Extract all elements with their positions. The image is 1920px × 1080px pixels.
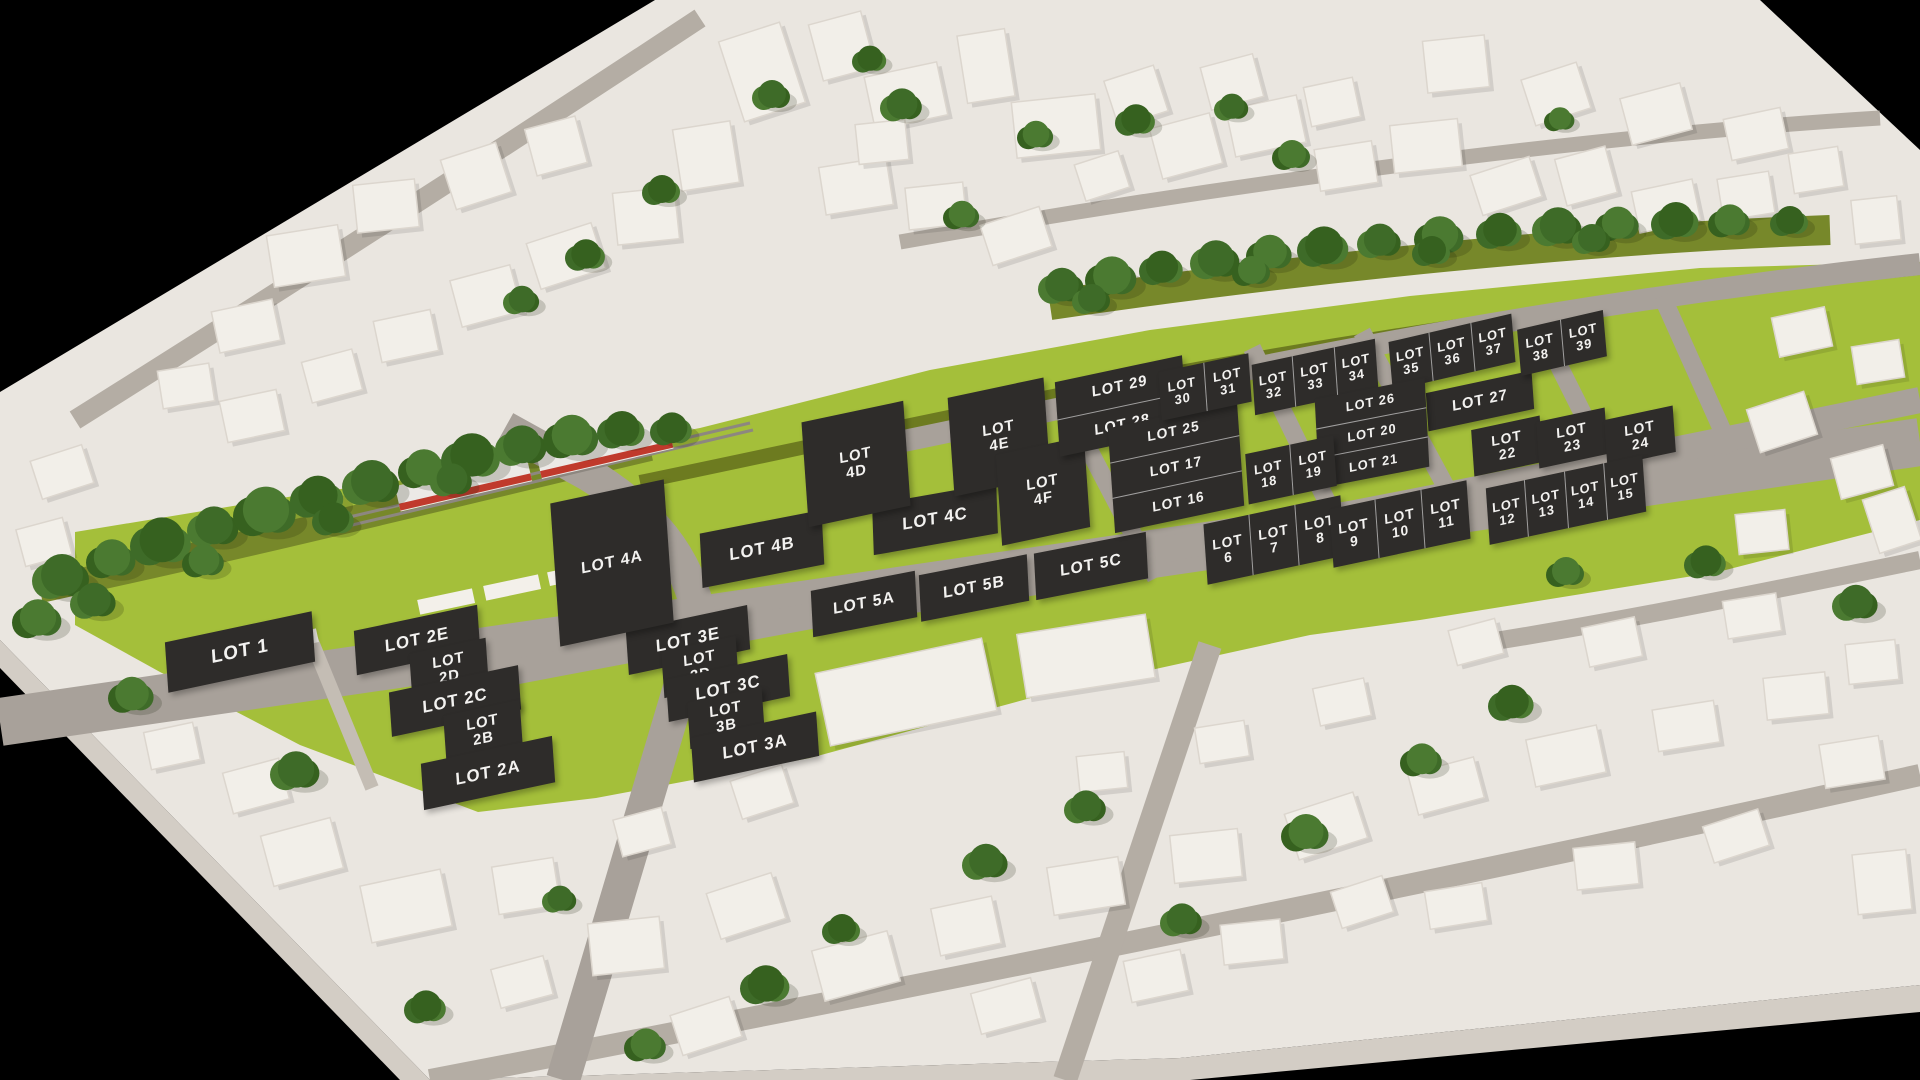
lot-group: LOT 38LOT 39 <box>1517 310 1607 376</box>
lot-label-lot-13[interactable]: LOT 13 <box>1524 472 1567 537</box>
lot-label-lot-12[interactable]: LOT 12 <box>1486 480 1528 545</box>
lot-label-lot-15[interactable]: LOT 15 <box>1603 455 1646 520</box>
lot-label-lot-32[interactable]: LOT 32 <box>1252 356 1296 415</box>
lot-group: LOT 9LOT 10LOT 11 <box>1329 480 1470 568</box>
lot-label-lot-38[interactable]: LOT 38 <box>1517 320 1563 376</box>
lot-label-lot-23[interactable]: LOT 23 <box>1536 408 1608 469</box>
lot-label-lot-4a[interactable]: LOT 4A <box>550 479 673 646</box>
lot-label-lot-1[interactable]: LOT 1 <box>165 611 315 693</box>
lot-label-lot-4d[interactable]: LOT 4D <box>801 401 910 527</box>
lot-label-lot-9[interactable]: LOT 9 <box>1329 500 1378 568</box>
lot-label-lot-5c[interactable]: LOT 5C <box>1034 532 1148 600</box>
lot-label-lot-4b[interactable]: LOT 4B <box>700 510 825 588</box>
lot-label-lot-10[interactable]: LOT 10 <box>1374 490 1424 558</box>
lot-label-lot-37[interactable]: LOT 37 <box>1470 314 1515 372</box>
lot-labels-layer: LOT 1LOT 2ELOT 2DLOT 2CLOT 2BLOT 2ALOT 3… <box>0 0 1920 1080</box>
lot-label-lot-30[interactable]: LOT 30 <box>1158 363 1206 421</box>
lot-label-lot-14[interactable]: LOT 14 <box>1564 464 1607 529</box>
lot-label-lot-31[interactable]: LOT 31 <box>1203 353 1252 411</box>
lot-group: LOT 18LOT 19 <box>1245 435 1337 504</box>
lot-label-lot-36[interactable]: LOT 36 <box>1429 323 1474 381</box>
lot-label-lot-5b[interactable]: LOT 5B <box>919 554 1029 621</box>
lot-label-lot-7[interactable]: LOT 7 <box>1248 505 1298 575</box>
lot-label-lot-5a[interactable]: LOT 5A <box>811 571 917 638</box>
lot-label-lot-6[interactable]: LOT 6 <box>1203 515 1252 585</box>
lot-label-lot-18[interactable]: LOT 18 <box>1245 445 1292 505</box>
lot-label-lot-39[interactable]: LOT 39 <box>1559 310 1606 366</box>
lot-label-lot-22[interactable]: LOT 22 <box>1471 416 1543 477</box>
lot-label-lot-11[interactable]: LOT 11 <box>1420 480 1470 548</box>
lot-label-lot-19[interactable]: LOT 19 <box>1289 435 1337 495</box>
site-plan-3d-viewport[interactable]: LOT 1LOT 2ELOT 2DLOT 2CLOT 2BLOT 2ALOT 3… <box>0 0 1920 1080</box>
